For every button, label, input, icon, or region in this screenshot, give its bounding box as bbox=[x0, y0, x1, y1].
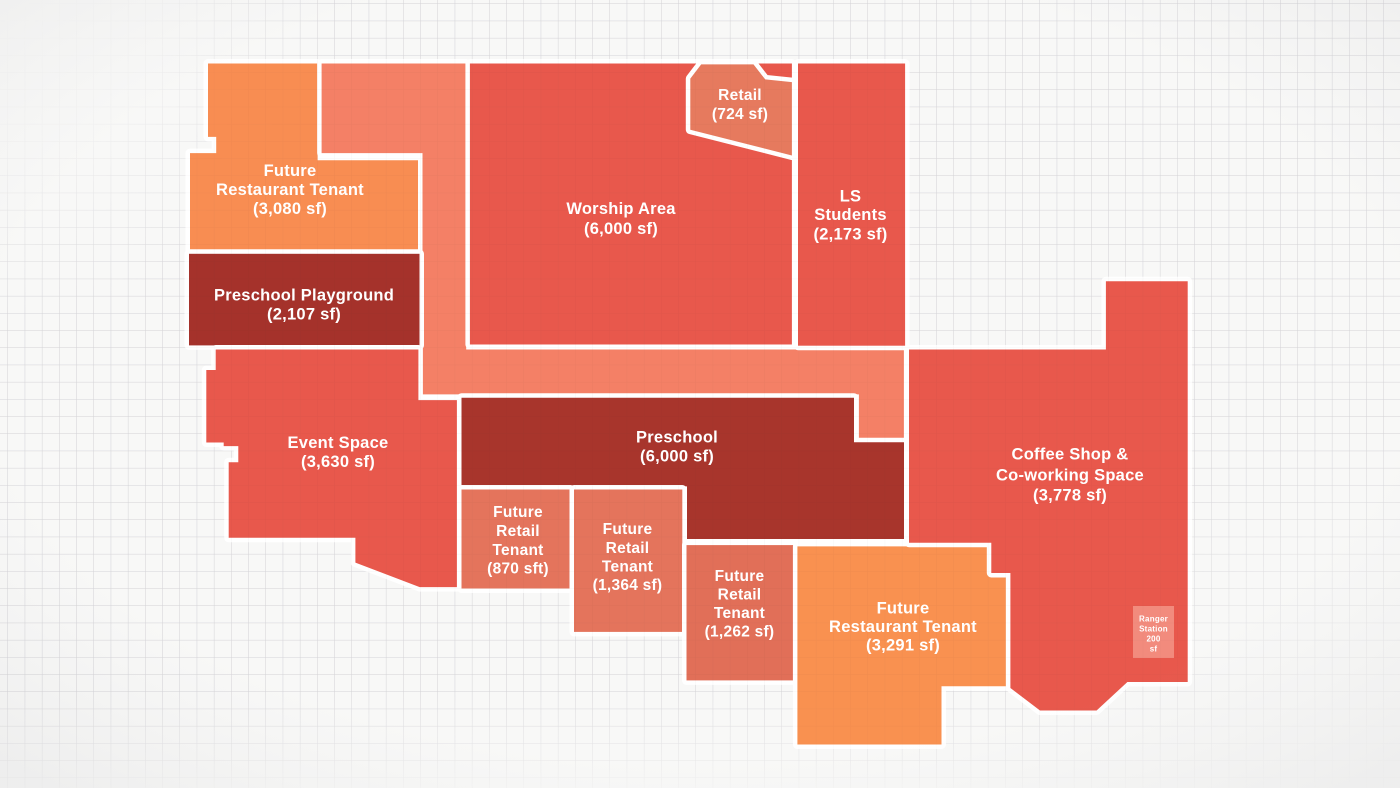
svg-text:(1,364 sf): (1,364 sf) bbox=[593, 577, 663, 594]
svg-text:200: 200 bbox=[1146, 635, 1160, 644]
svg-text:Ranger: Ranger bbox=[1139, 615, 1168, 624]
svg-text:Retail: Retail bbox=[718, 87, 762, 104]
svg-text:(1,262 sf): (1,262 sf) bbox=[705, 624, 775, 641]
svg-text:LS: LS bbox=[840, 188, 862, 206]
svg-text:Retail: Retail bbox=[606, 540, 650, 557]
svg-text:Worship Area: Worship Area bbox=[566, 200, 676, 218]
svg-text:Restaurant Tenant: Restaurant Tenant bbox=[216, 181, 364, 199]
svg-text:Tenant: Tenant bbox=[714, 605, 765, 622]
svg-text:Retail: Retail bbox=[718, 587, 762, 604]
svg-text:(3,630 sf): (3,630 sf) bbox=[301, 453, 375, 471]
svg-text:(6,000 sf): (6,000 sf) bbox=[584, 220, 658, 238]
svg-text:Preschool Playground: Preschool Playground bbox=[214, 287, 394, 305]
svg-text:Station: Station bbox=[1139, 625, 1168, 634]
svg-text:Future: Future bbox=[264, 162, 317, 180]
svg-text:sf: sf bbox=[1150, 645, 1158, 654]
svg-text:(2,173 sf): (2,173 sf) bbox=[813, 226, 887, 244]
svg-text:Retail: Retail bbox=[496, 523, 540, 540]
svg-text:(6,000 sf): (6,000 sf) bbox=[640, 448, 714, 466]
svg-text:(3,080 sf): (3,080 sf) bbox=[253, 200, 327, 218]
svg-text:Event Space: Event Space bbox=[288, 434, 389, 452]
svg-text:(3,778 sf): (3,778 sf) bbox=[1033, 487, 1107, 505]
svg-text:(2,107 sf): (2,107 sf) bbox=[267, 306, 341, 324]
svg-text:Future: Future bbox=[603, 521, 653, 538]
svg-text:(870 sft): (870 sft) bbox=[487, 561, 549, 578]
svg-text:(724 sf): (724 sf) bbox=[712, 106, 768, 123]
svg-text:Restaurant Tenant: Restaurant Tenant bbox=[829, 618, 977, 636]
svg-text:Coffee Shop &: Coffee Shop & bbox=[1012, 446, 1129, 464]
svg-text:Co-working Space: Co-working Space bbox=[996, 467, 1144, 485]
svg-text:Tenant: Tenant bbox=[492, 542, 543, 559]
svg-text:Preschool: Preschool bbox=[636, 429, 718, 447]
svg-text:Future: Future bbox=[877, 600, 930, 618]
svg-text:Students: Students bbox=[814, 206, 887, 224]
svg-text:Tenant: Tenant bbox=[602, 559, 653, 576]
svg-text:Future: Future bbox=[715, 568, 765, 585]
svg-text:(3,291 sf): (3,291 sf) bbox=[866, 637, 940, 655]
svg-text:Future: Future bbox=[493, 504, 543, 521]
